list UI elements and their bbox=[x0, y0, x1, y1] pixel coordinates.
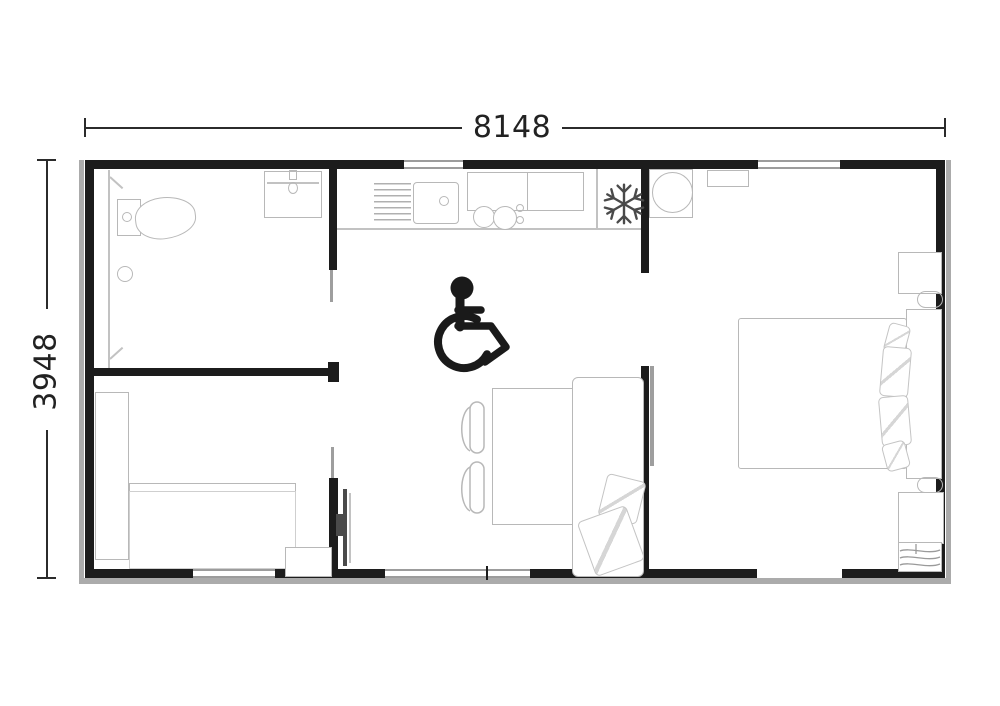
shadow-left bbox=[79, 160, 84, 583]
dimension-width-label: 8148 bbox=[462, 110, 562, 145]
shower-mark-bottom bbox=[109, 347, 123, 360]
burner-left bbox=[473, 206, 495, 228]
tv-mount bbox=[336, 514, 344, 536]
dimension-line-left-bottom bbox=[46, 430, 48, 578]
window-bedroom bbox=[758, 160, 840, 169]
pillow bbox=[879, 346, 912, 398]
toilet-bowl bbox=[133, 193, 199, 242]
floor-drain bbox=[117, 266, 133, 282]
wall-top-2 bbox=[463, 160, 758, 169]
wall-shelf bbox=[707, 170, 749, 187]
dimension-line-top-left bbox=[85, 127, 462, 129]
shadow-right bbox=[946, 160, 951, 583]
tv-stand bbox=[285, 547, 332, 577]
dimension-tick-top-left bbox=[84, 118, 86, 137]
drainer bbox=[374, 183, 411, 224]
wall-bottom-1 bbox=[85, 569, 193, 578]
dimension-tick-top-right bbox=[944, 118, 946, 137]
window-living bbox=[385, 569, 530, 578]
window-mullion bbox=[486, 566, 488, 580]
bathroom-sliding-door bbox=[330, 270, 333, 302]
faucet-icon bbox=[289, 170, 297, 180]
kitchen-cabinet bbox=[527, 172, 584, 211]
sofa-bed bbox=[129, 491, 296, 569]
window-bedroom2 bbox=[193, 569, 275, 578]
tv-screen-edge bbox=[349, 493, 351, 563]
chair-top bbox=[455, 399, 487, 457]
headboard bbox=[906, 309, 942, 479]
wall-lamp-bottom bbox=[917, 477, 943, 493]
wall-top-1 bbox=[85, 160, 404, 169]
water-heater-drum bbox=[652, 172, 693, 213]
snowflake-icon bbox=[602, 182, 646, 226]
fridge-divider bbox=[596, 169, 598, 230]
shower-screen bbox=[108, 170, 110, 368]
wall-lamp-top bbox=[917, 291, 943, 308]
window-kitchen bbox=[404, 160, 463, 169]
dining-table bbox=[492, 388, 577, 525]
shadow-bottom bbox=[79, 578, 951, 584]
wall-top-3 bbox=[840, 160, 945, 169]
tv-wall-rail bbox=[331, 447, 334, 479]
dimension-tick-left-bottom bbox=[37, 577, 56, 579]
knob-top bbox=[516, 204, 524, 212]
dresser-drawers-icon bbox=[898, 542, 942, 572]
pillow bbox=[878, 395, 912, 447]
nightstand-bottom bbox=[898, 492, 944, 544]
faucet-knob-icon bbox=[288, 182, 298, 194]
dimension-line-left-top bbox=[46, 160, 48, 309]
chair-bottom bbox=[455, 459, 487, 517]
wardrobe bbox=[95, 392, 129, 560]
wheelchair-accessibility-icon bbox=[420, 263, 518, 378]
dimension-height-label: 3948 bbox=[29, 322, 64, 422]
wall-bathroom-bottom bbox=[85, 368, 333, 376]
burner-right bbox=[493, 206, 517, 230]
nightstand-top bbox=[898, 252, 942, 294]
dimension-line-top-right bbox=[562, 127, 945, 129]
toilet-flush-button bbox=[122, 212, 132, 222]
bedroom-sliding-door bbox=[650, 366, 654, 466]
shower-mark-top bbox=[109, 176, 123, 189]
floorplan: 8148 3948 bbox=[0, 0, 1000, 706]
dimension-tick-left-top bbox=[37, 159, 56, 161]
kitchen-sink bbox=[413, 182, 459, 224]
knob-bottom bbox=[516, 216, 524, 224]
sink-drain bbox=[439, 196, 449, 206]
wall-bathroom-right bbox=[329, 163, 337, 270]
wall-end-cap bbox=[328, 362, 339, 382]
